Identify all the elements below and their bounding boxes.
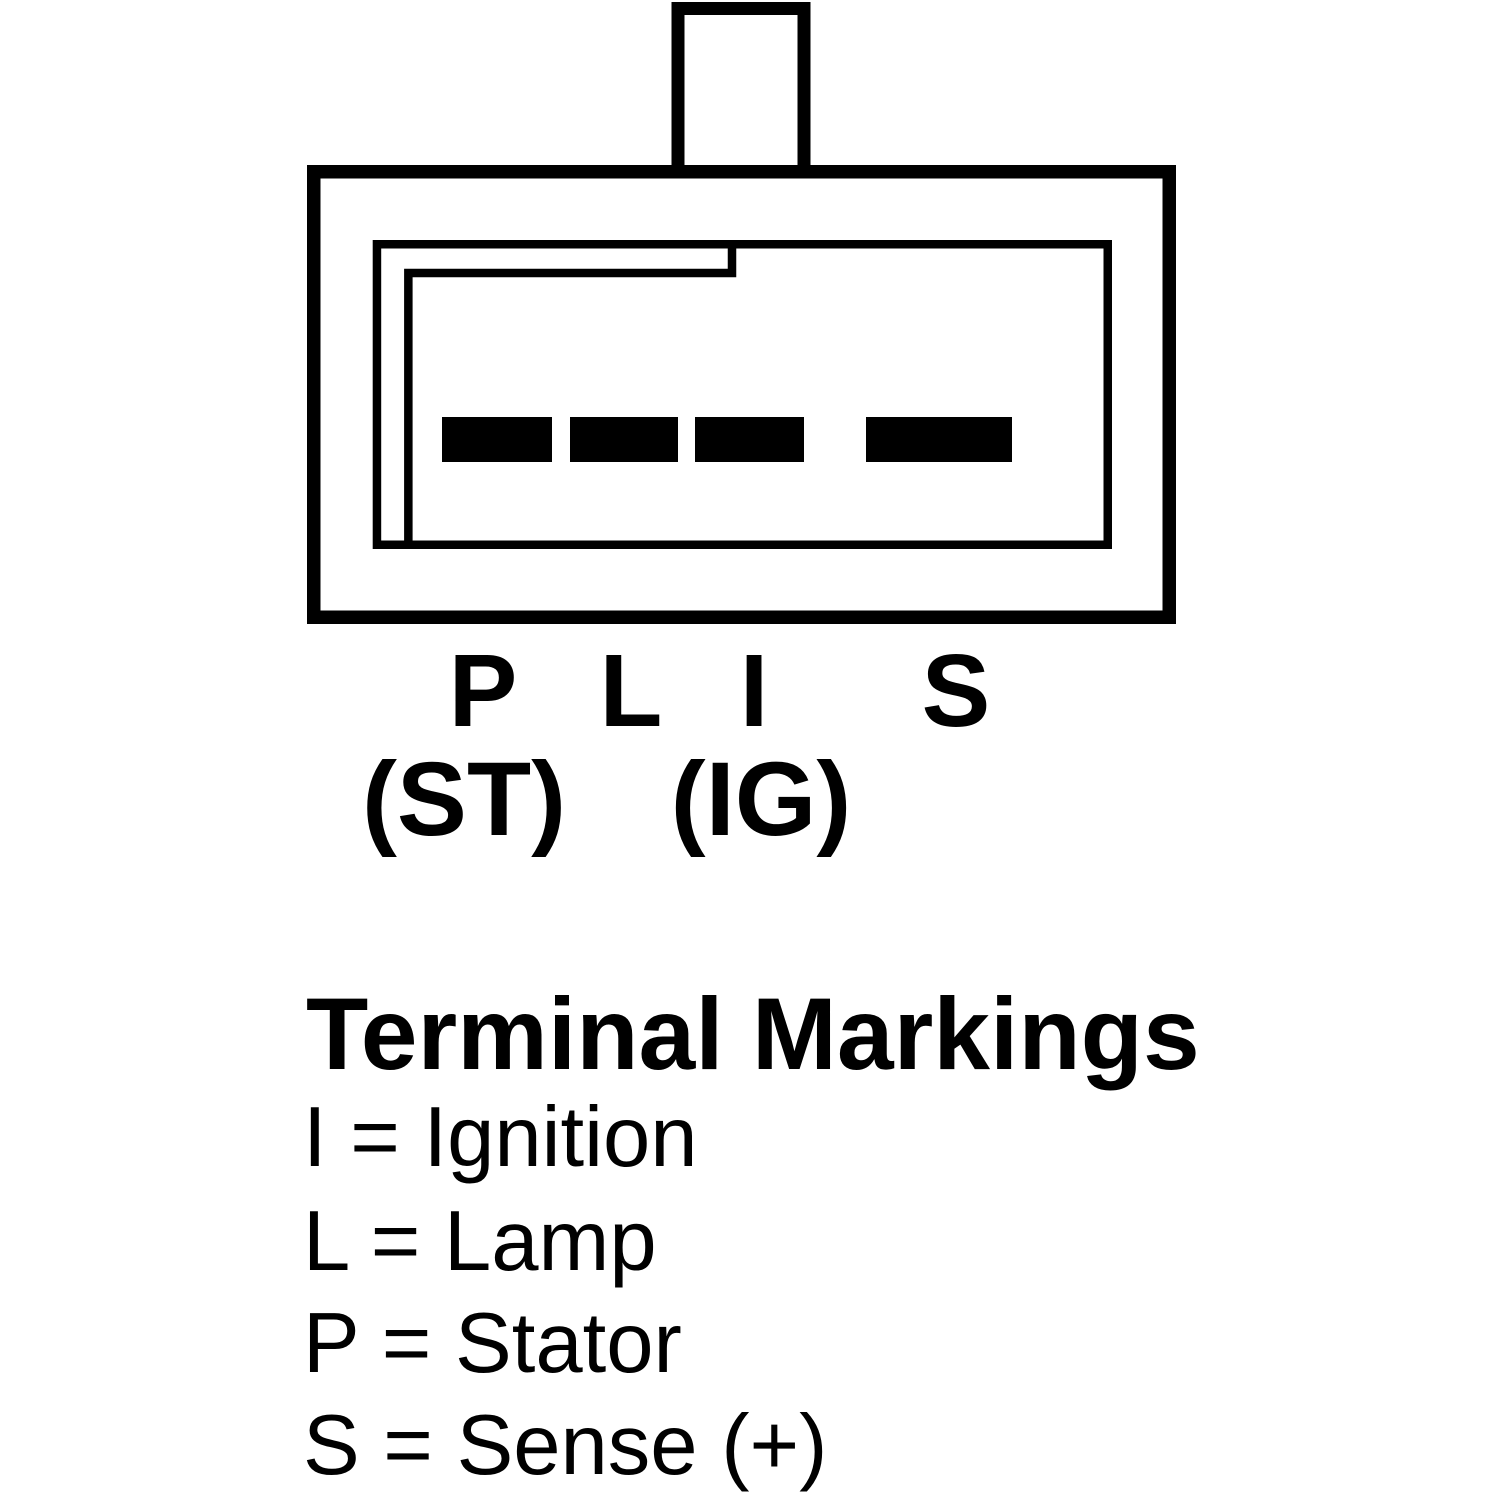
svg-text:Terminal Markings: Terminal Markings [306, 977, 1200, 1091]
svg-text:L = Lamp: L = Lamp [303, 1194, 657, 1289]
svg-text:P = Stator: P = Stator [303, 1296, 682, 1391]
svg-text:S: S [922, 633, 991, 748]
svg-text:(ST): (ST) [362, 741, 566, 858]
svg-text:I = Ignition: I = Ignition [303, 1090, 698, 1185]
svg-text:I: I [740, 633, 769, 748]
svg-text:L: L [600, 633, 663, 748]
svg-text:S = Sense (+): S = Sense (+) [303, 1398, 827, 1493]
svg-text:P: P [449, 633, 518, 748]
svg-text:(IG): (IG) [671, 741, 852, 858]
